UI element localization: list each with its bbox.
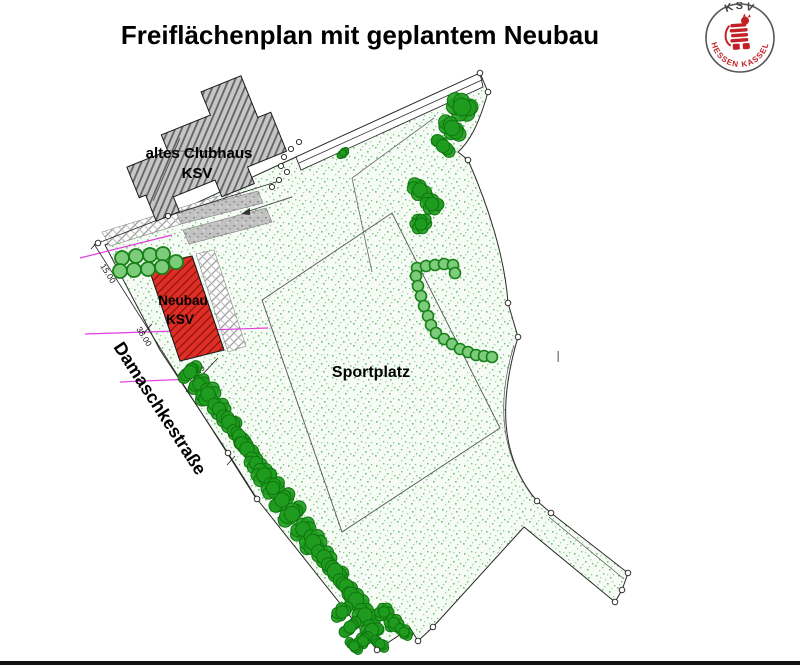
neubau-label-2: KSV [166,312,194,327]
sportplatz-label: Sportplatz [332,364,410,381]
bottom-border-line [0,661,800,665]
clubhouse-label-1: altes Clubhaus [146,145,253,162]
slide: Freiflächenplan mit geplantem Neubau KSV… [0,0,800,668]
neubau-label-1: Neubau [158,293,208,308]
site-plan: 15.00 38.00 16.49 altes Clubhaus KSV Neu… [0,0,800,668]
text-cursor-artifact: I [556,349,560,366]
clubhouse-label-2: KSV [182,165,213,182]
